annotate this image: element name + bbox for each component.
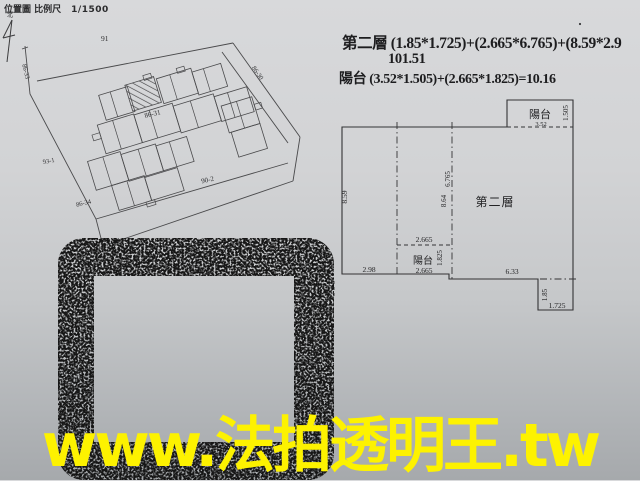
room-label-second-floor: 第二層 bbox=[475, 195, 514, 209]
dim-notch-height: 1.85 bbox=[541, 288, 549, 301]
building-cluster bbox=[68, 45, 280, 220]
lot-label-91: 91 bbox=[101, 34, 109, 43]
drawing-layer: 北 bbox=[0, 0, 640, 480]
dim-top-balcony-height: 1.505 bbox=[562, 105, 570, 121]
lot-label-86-31: 86-31 bbox=[144, 108, 162, 120]
dim-inner-balcony-top: 2.665 bbox=[416, 235, 433, 244]
lot-label-90-2: 90-2 bbox=[200, 175, 215, 186]
unit-partitions bbox=[80, 45, 281, 216]
dim-inner-balcony-height: 1.825 bbox=[436, 250, 444, 266]
dim-mid-height: 6.765 bbox=[444, 171, 452, 187]
dim-notch-width: 1.725 bbox=[549, 301, 566, 310]
dim-bottom-right-width: 6.33 bbox=[505, 267, 518, 276]
north-label: 北 bbox=[7, 11, 13, 19]
floor-outline bbox=[342, 100, 573, 310]
floor-plan-drawing: 第二層 陽台 3.52 1.505 8.59 6.765 8.64 2.665 … bbox=[334, 100, 577, 310]
hatched-unit bbox=[125, 77, 162, 112]
dim-bottom-left-width: 2.98 bbox=[362, 265, 375, 274]
north-arrow-icon: 北 bbox=[3, 11, 15, 62]
watermark-text: www.法拍透明王.tw bbox=[0, 416, 640, 476]
ink-speck bbox=[579, 23, 581, 25]
dim-inner-balcony-bottom: 2.665 bbox=[416, 266, 433, 275]
dim-left-height: 8.59 bbox=[340, 190, 349, 203]
lot-label-93-1: 93-1 bbox=[42, 157, 55, 166]
dim-top-balcony-width: 3.52 bbox=[535, 121, 546, 128]
lot-label-86-33: 86-33 bbox=[20, 63, 30, 79]
lot-label-86-30: 86-30 bbox=[250, 65, 264, 81]
top-balcony-label: 陽台 bbox=[529, 107, 551, 121]
site-plan-drawing: 91 86-33 86-30 86-31 93-1 90-2 86-34 bbox=[20, 23, 581, 246]
scanned-floorplan-document: { "colors": { "paper_top": "#d8d9db", "p… bbox=[0, 0, 640, 480]
dim-right-height: 8.64 bbox=[440, 194, 448, 207]
